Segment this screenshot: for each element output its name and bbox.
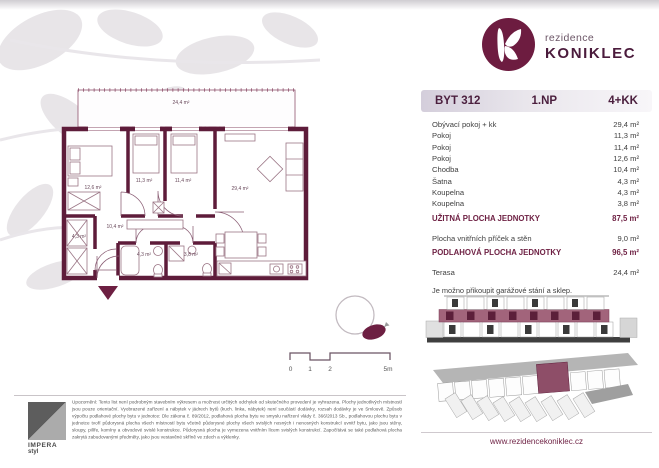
room-label: Šatna bbox=[432, 176, 452, 187]
unit-sheet: rezidence KONIKLEC BYT 312 1.NP 4+KK Obý… bbox=[0, 0, 659, 468]
terrace-outline bbox=[78, 90, 295, 127]
window-symbols bbox=[88, 127, 288, 132]
table-row: Koupelna4,3 m² bbox=[432, 187, 639, 198]
table-row: Chodba10,4 m² bbox=[432, 164, 639, 175]
living-area-label: 29,4 m² bbox=[232, 186, 249, 192]
footer-divider-right bbox=[421, 432, 652, 433]
terrace-area-label: 24,4 m² bbox=[173, 100, 190, 106]
room-label: Pokoj bbox=[432, 142, 451, 153]
north-compass-icon bbox=[332, 291, 390, 345]
room-area: 29,4 m² bbox=[613, 119, 639, 130]
room-label: Pokoj bbox=[432, 153, 451, 164]
usable-area-total: UŽITNÁ PLOCHA JEDNOTKY87,5 m² bbox=[432, 213, 639, 224]
room-area: 4,3 m² bbox=[617, 176, 639, 187]
room-area: 3,8 m² bbox=[617, 198, 639, 209]
room-label: Chodba bbox=[432, 164, 459, 175]
table-row: Koupelna3,8 m² bbox=[432, 198, 639, 209]
brand-logo: rezidence KONIKLEC bbox=[482, 18, 636, 71]
scale-tick-5m: 5m bbox=[383, 366, 392, 373]
bedroom2-area-label: 11,3 m² bbox=[136, 178, 153, 184]
floor-area-total: PODLAHOVÁ PLOCHA JEDNOTKY96,5 m² bbox=[432, 247, 639, 258]
room-area: 11,3 m² bbox=[614, 130, 639, 141]
table-row: Pokoj11,3 m² bbox=[432, 130, 639, 141]
bedroom1-area-label: 12,6 m² bbox=[85, 185, 102, 191]
room-area: 10,4 m² bbox=[613, 164, 639, 175]
floor-plan: 24,4 m² 12,6 m² 11,3 m² 11,4 m² 29,4 m² … bbox=[60, 84, 310, 304]
bath2-area-label: 3,8 m² bbox=[184, 252, 199, 258]
room-area: 4,3 m² bbox=[617, 187, 639, 198]
table-row: Obývací pokoj + kk29,4 m² bbox=[432, 119, 639, 130]
total-label: PODLAHOVÁ PLOCHA JEDNOTKY bbox=[432, 247, 561, 258]
publisher-suffix: styl bbox=[28, 449, 72, 455]
brand-prefix: rezidence bbox=[545, 32, 636, 44]
entrance-marker-icon bbox=[98, 286, 118, 300]
legal-disclaimer: Upozornění: Tento list není podrobným st… bbox=[72, 399, 402, 441]
total-area: 87,5 m² bbox=[612, 213, 639, 224]
room-area: 12,6 m² bbox=[613, 153, 639, 164]
row-area: 24,4 m² bbox=[613, 267, 639, 278]
scale-bar: 0 1 2 5m bbox=[288, 347, 394, 377]
scale-tick-0: 0 bbox=[289, 366, 293, 373]
unit-number: BYT 312 bbox=[435, 95, 480, 107]
unit-disposition: 4+KK bbox=[608, 95, 638, 107]
table-row: Pokoj12,6 m² bbox=[432, 153, 639, 164]
row-label: Terasa bbox=[432, 267, 455, 278]
unit-header-bar: BYT 312 1.NP 4+KK bbox=[421, 90, 652, 112]
row-area: 9,0 m² bbox=[617, 233, 639, 244]
publisher-block: IMPERA styl bbox=[28, 402, 72, 455]
partitions-row: Plocha vnitřních příček a stěn9,0 m² bbox=[432, 233, 639, 244]
table-row: Pokoj11,4 m² bbox=[432, 142, 639, 153]
floor-location-schematic bbox=[426, 350, 638, 422]
footer-divider-left bbox=[14, 395, 406, 396]
scale-tick-1: 1 bbox=[308, 366, 312, 373]
bedroom3-area-label: 11,4 m² bbox=[175, 178, 192, 184]
impera-logo-icon bbox=[28, 402, 66, 440]
room-label: Koupelna bbox=[432, 187, 464, 198]
terrace-row: Terasa24,4 m² bbox=[432, 267, 639, 278]
unit-floor: 1.NP bbox=[532, 95, 558, 107]
wardrobe-area-label: 4,3 m² bbox=[72, 234, 87, 240]
room-label: Koupelna bbox=[432, 198, 464, 209]
table-row: Šatna4,3 m² bbox=[432, 176, 639, 187]
building-elevation-image bbox=[424, 293, 640, 345]
brand-text: rezidence KONIKLEC bbox=[545, 32, 636, 62]
room-area-table: Obývací pokoj + kk29,4 m² Pokoj11,3 m² P… bbox=[432, 119, 639, 295]
room-label: Obývací pokoj + kk bbox=[432, 119, 496, 130]
room-area: 11,4 m² bbox=[614, 142, 639, 153]
koniklec-leaf-logo-icon bbox=[482, 18, 535, 71]
room-label: Pokoj bbox=[432, 130, 451, 141]
corridor-area-label: 10,4 m² bbox=[107, 224, 124, 230]
scale-tick-2: 2 bbox=[328, 366, 332, 373]
total-area: 96,5 m² bbox=[612, 247, 639, 258]
bath1-area-label: 4,3 m² bbox=[137, 252, 152, 258]
website-link[interactable]: www.rezidencekoniklec.cz bbox=[421, 437, 652, 446]
publisher-name: IMPERA bbox=[28, 442, 72, 449]
total-label: UŽITNÁ PLOCHA JEDNOTKY bbox=[432, 213, 540, 224]
row-label: Plocha vnitřních příček a stěn bbox=[432, 233, 532, 244]
highlighted-unit bbox=[536, 362, 569, 393]
highlighted-floor-band bbox=[439, 310, 609, 323]
brand-name: KONIKLEC bbox=[545, 45, 636, 62]
